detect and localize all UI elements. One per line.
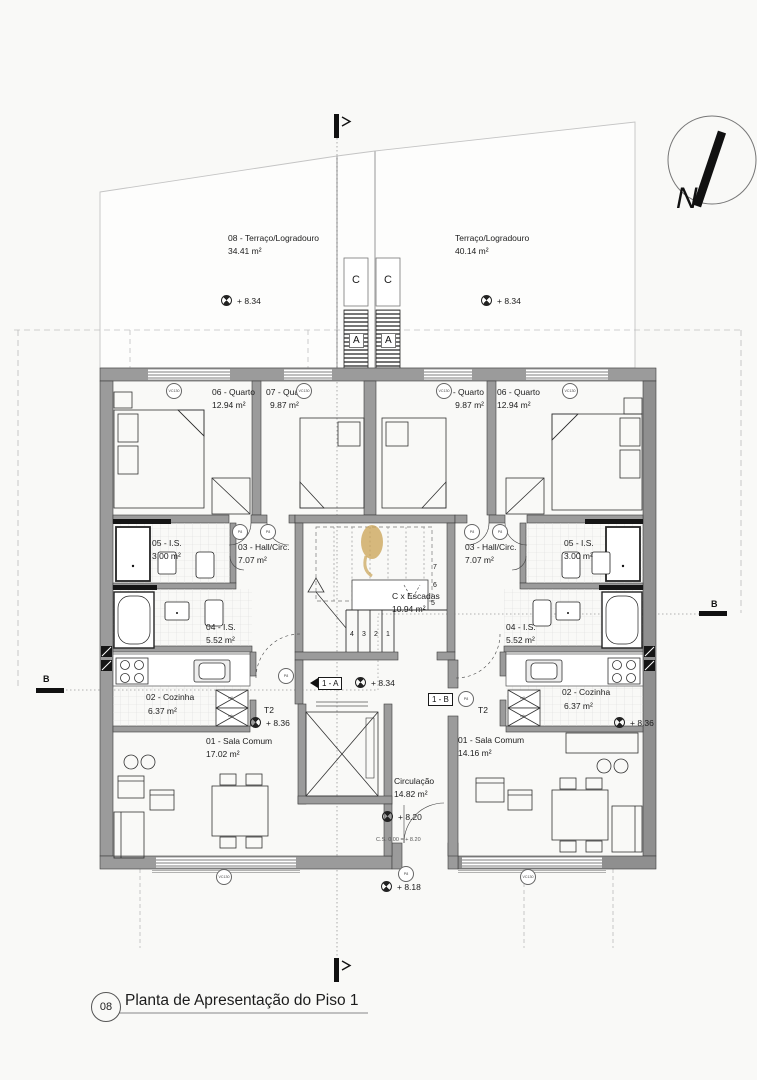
stair-step-7: 7 [433, 562, 437, 574]
level-icon [382, 811, 393, 822]
level-icon [221, 295, 232, 306]
room-hall-left-area: 7.07 m² [238, 554, 267, 566]
appliance-label-mll-left: mll [228, 695, 233, 700]
appliance-label-mll-right: mll [520, 695, 525, 700]
section-b-right-label: B [711, 599, 718, 609]
window-marker: VC130 [296, 383, 312, 399]
unit-tag-1a-arrow [308, 677, 320, 689]
window-marker: VC130 [562, 383, 578, 399]
stair-step-5: 5 [431, 598, 435, 610]
room-wc05-left-name: 05 - I.S. [152, 537, 182, 549]
section-b-left-label: B [43, 674, 50, 684]
room-kitchen-right-name: 02 - Cozinha [562, 686, 610, 698]
room-bedroom06-left-area: 12.94 m² [212, 399, 246, 411]
stair-step-3: 3 [362, 629, 366, 641]
level-icon [614, 717, 625, 728]
door-marker: P8 [260, 524, 276, 540]
room-hall-right-area: 7.07 m² [465, 554, 494, 566]
level-icon [381, 881, 392, 892]
room-kitchen-left-area: 6.37 m² [148, 705, 177, 717]
door-marker: P8 [464, 524, 480, 540]
room-wc04-right-name: 04 - I.S. [506, 621, 536, 633]
bedroom-furniture [114, 392, 642, 514]
section-b-left-tick [36, 688, 64, 693]
elevation-landing: + 8.34 [355, 677, 395, 688]
room-living-right-area: 14.16 m² [458, 747, 492, 759]
room-bedroom07-right-area: 9.87 m² [444, 399, 484, 411]
stair-step-4: 4 [350, 629, 354, 641]
drawing-title: Planta de Apresentação do Piso 1 [125, 991, 359, 1011]
stair-step-6: 6 [433, 580, 437, 592]
window-marker: VC130 [436, 383, 452, 399]
shaft-c-right: C [376, 274, 400, 286]
stair-step-1: 1 [386, 629, 390, 641]
section-b-right-tick [699, 611, 727, 616]
room-wc04-left-name: 04 - I.S. [206, 621, 236, 633]
duct-a-right: A [381, 333, 396, 348]
stairs-area: 10.94 m² [392, 603, 426, 615]
door-marker: P8 [492, 524, 508, 540]
duct-a-left: A [349, 333, 364, 348]
unit-type-right: T2 [478, 704, 488, 716]
terrace-right-name: Terraço/Logradouro [455, 232, 529, 244]
appliance-label-mlr-right: mlr [520, 713, 526, 718]
room-living-right-name: 01 - Sala Comum [458, 734, 524, 746]
elevator [306, 702, 378, 796]
stair-step-2: 2 [374, 629, 378, 641]
door-marker: P8 [278, 668, 294, 684]
room-hall-right-name: 03 - Hall/Circ. [465, 541, 516, 553]
room-wc04-left-area: 5.52 m² [206, 634, 235, 646]
room-bedroom06-right-name: 06 - Quarto [497, 386, 540, 398]
room-wc05-left-area: 3.00 m² [152, 550, 181, 562]
north-label: N [676, 182, 698, 216]
floor-plan-drawing [0, 0, 757, 1080]
elevation-outside: + 8.18 [381, 881, 421, 892]
elevation-entry-left: + 8.36 [250, 717, 290, 728]
elevation-terrace-right: + 8.34 [481, 295, 521, 306]
room-bedroom06-left-name: 06 - Quarto [212, 386, 255, 398]
elevation-terrace-left: + 8.34 [221, 295, 261, 306]
floor-plan-page: { "colors": {"wall":"#9b9b9b","wall_dark… [0, 0, 757, 1080]
room-circulation-area: 14.82 m² [394, 788, 428, 800]
shaft-c-left: C [344, 274, 368, 286]
circulation-note: C.S. 0.00 = + 8.20 [376, 834, 421, 846]
level-icon [250, 717, 261, 728]
room-wc05-right-area: 3.00 m² [564, 550, 593, 562]
room-hall-left-name: 03 - Hall/Circ. [238, 541, 289, 553]
level-icon [355, 677, 366, 688]
room-bedroom07-left-area: 9.87 m² [270, 399, 299, 411]
room-kitchen-left-name: 02 - Cozinha [146, 691, 194, 703]
unit-tag-1b: 1 - B [428, 693, 453, 706]
window-marker: VC130 [520, 869, 536, 885]
door-marker: P8 [232, 524, 248, 540]
terrace-left-name: 08 - Terraço/Logradouro [228, 232, 319, 244]
appliance-label-mlr-left: mlr [228, 713, 234, 718]
room-circulation-name: Circulação [394, 775, 434, 787]
level-icon [481, 295, 492, 306]
window-marker: VC130 [216, 869, 232, 885]
room-wc04-right-area: 5.52 m² [506, 634, 535, 646]
room-bedroom06-right-area: 12.94 m² [497, 399, 531, 411]
window-marker: VC130 [166, 383, 182, 399]
terrace-left-area: 34.41 m² [228, 245, 262, 257]
terrace-right-area: 40.14 m² [455, 245, 489, 257]
elevation-entry-right: + 8.36 [614, 717, 654, 728]
room-living-left-area: 17.02 m² [206, 748, 240, 760]
room-wc05-right-name: 05 - I.S. [564, 537, 594, 549]
elevation-circulation: + 8.20 [382, 811, 422, 822]
unit-tag-1a: 1 - A [318, 677, 342, 690]
unit-type-left: T2 [264, 704, 274, 716]
door-marker: P8 [458, 691, 474, 707]
drawing-number-badge: 08 [91, 992, 121, 1022]
door-marker: P8 [398, 866, 414, 882]
room-kitchen-right-area: 6.37 m² [564, 700, 593, 712]
room-living-left-name: 01 - Sala Comum [206, 735, 272, 747]
